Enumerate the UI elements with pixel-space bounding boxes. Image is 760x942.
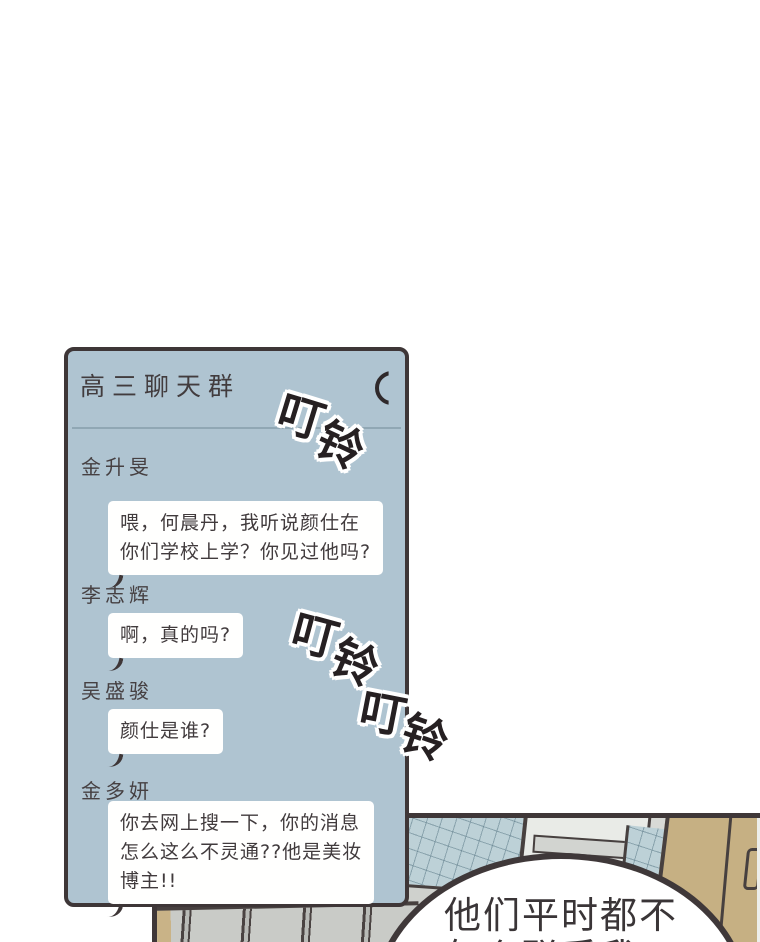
- message-line: 颜仕是谁?: [120, 717, 211, 746]
- chat-message: 啊，真的吗?: [108, 613, 243, 658]
- comic-page: 他们平时都不 怎么联系我… 高三聊天群 金升旻 喂，何晨丹，我听说颜仕在 你们学…: [0, 0, 760, 942]
- message-line: 啊，真的吗?: [120, 621, 231, 650]
- chat-message: 你去网上搜一下，你的消息 怎么这么不灵通??他是美妆 博主!!: [108, 801, 374, 904]
- message-line: 你去网上搜一下，你的消息: [120, 809, 362, 838]
- search-icon: [375, 371, 409, 405]
- sender-name: 吴盛骏: [81, 675, 153, 704]
- sender-name: 李志辉: [81, 579, 153, 608]
- lockers: [156, 901, 419, 942]
- chat-message: 颜仕是谁?: [108, 709, 223, 754]
- speech-line-2: 怎么联系我…: [444, 927, 678, 942]
- sender-name: 金升旻: [81, 451, 153, 480]
- chat-message: 喂，何晨丹，我听说颜仕在 你们学校上学？你见过他吗?: [108, 501, 383, 575]
- message-line: 怎么这么不灵通??他是美妆: [120, 838, 362, 867]
- message-line: 你们学校上学？你见过他吗?: [120, 538, 371, 567]
- chat-group-title: 高三聊天群: [80, 367, 240, 403]
- sender-name: 金多妍: [81, 775, 153, 804]
- message-line: 博主!!: [120, 867, 362, 896]
- message-line: 喂，何晨丹，我听说颜仕在: [120, 509, 371, 538]
